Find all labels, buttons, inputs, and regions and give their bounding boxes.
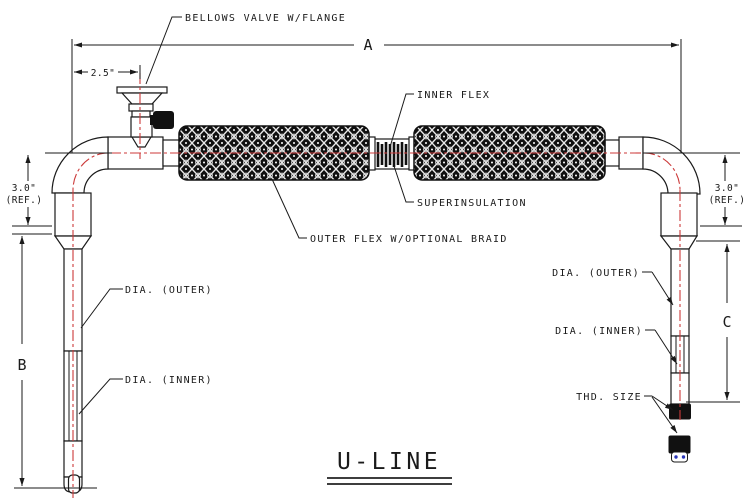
right-bayonet-block [661, 193, 697, 236]
u-line-technical-drawing: BELLOWS VALVE W/FLANGE INNER FLEX SUPERI… [0, 0, 745, 502]
valve-flange [117, 87, 167, 93]
label-bellows-valve: BELLOWS VALVE W/FLANGE [185, 13, 346, 24]
valve-body [131, 117, 152, 137]
thread-accent-dot [682, 455, 685, 458]
valve-flange-taper [122, 93, 162, 104]
left-tip-nozzle [69, 475, 80, 493]
dim-ref-left-value: 3.0" [12, 183, 36, 194]
annotations: BELLOWS VALVE W/FLANGE INNER FLEX SUPERI… [6, 13, 745, 403]
title-block: U-LINE [327, 449, 452, 484]
leader-outer-flex [272, 179, 307, 238]
right-taper [661, 236, 697, 249]
label-outer-flex: OUTER FLEX W/OPTIONAL BRAID [310, 234, 508, 245]
left-elbow [52, 137, 108, 193]
dim-c-label: C [722, 313, 731, 331]
label-inner-flex: INNER FLEX [417, 90, 490, 101]
dim-ref-right-value: 3.0" [715, 183, 739, 194]
thread-accent-dot [674, 455, 677, 458]
dim-b-label: B [17, 356, 26, 374]
label-dia-inner-right: DIA. (INNER) [555, 326, 643, 337]
dim-ref-left-suffix: (REF.) [6, 195, 43, 206]
label-dia-outer-right: DIA. (OUTER) [552, 268, 640, 279]
leader-dia-inner-left [79, 379, 123, 414]
drawing-canvas: BELLOWS VALVE W/FLANGE INNER FLEX SUPERI… [0, 0, 745, 502]
dim-ref-right-suffix: (REF.) [709, 195, 745, 206]
label-dia-inner-left: DIA. (INNER) [125, 375, 213, 386]
leader-superinsulation [394, 166, 414, 202]
leader-lines [79, 17, 677, 433]
label-superinsulation: SUPERINSULATION [417, 198, 527, 209]
bellows-valve [117, 87, 174, 137]
dimension-lines [12, 39, 742, 488]
valve-bonnet [132, 111, 150, 117]
valve-handle-knob [153, 111, 174, 129]
valve-bonnet-nut [129, 104, 153, 111]
label-thd-size: THD. SIZE [576, 392, 642, 403]
dim-a-label: A [363, 36, 372, 54]
leader-dia-outer-right [652, 272, 673, 305]
leader-dia-outer-left [81, 289, 123, 328]
leader-bellows-valve [146, 17, 182, 84]
label-dia-outer-left: DIA. (OUTER) [125, 285, 213, 296]
dim-valve-offset-label: 2.5" [91, 68, 115, 79]
drawing-title: U-LINE [337, 449, 441, 475]
detached-thread-fitting [669, 436, 690, 453]
leader-thd-size [652, 396, 673, 410]
